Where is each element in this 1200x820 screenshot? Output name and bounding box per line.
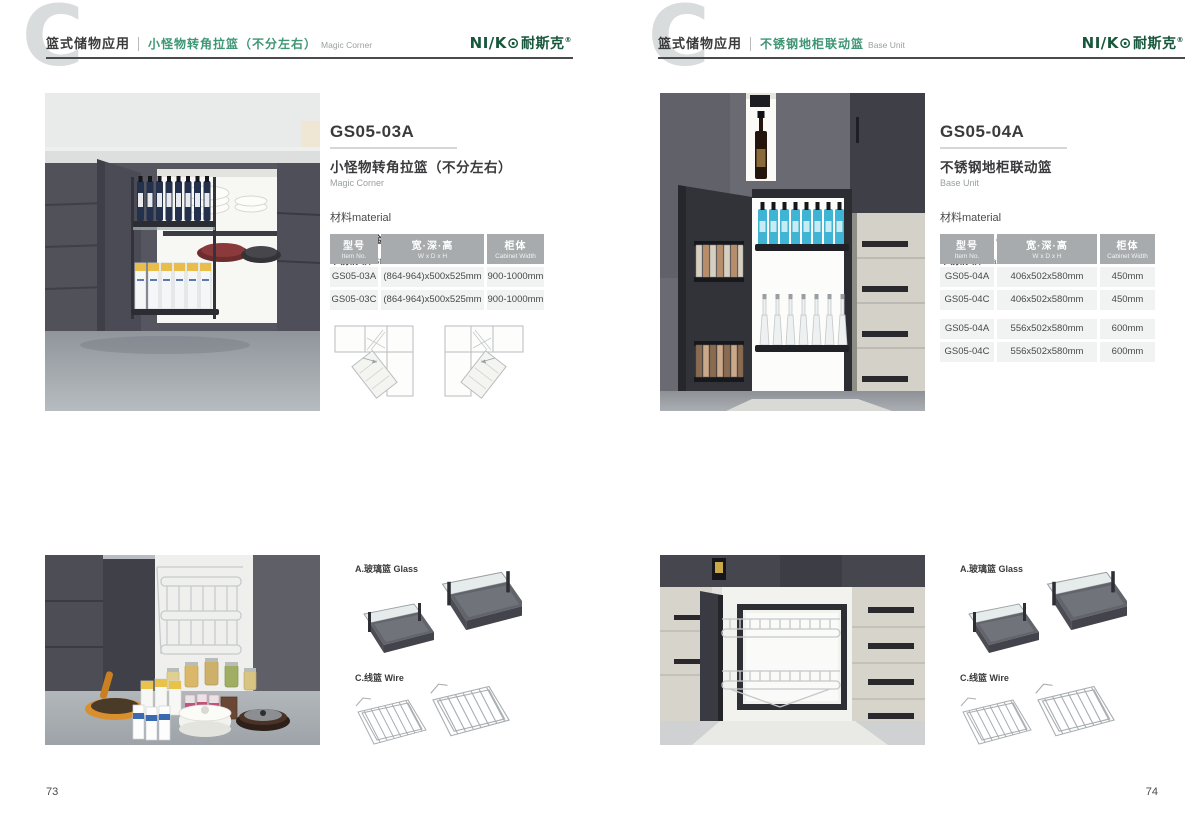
spec-cell-size: 556x502x580mm [997,342,1097,362]
catalog-page-right: C 篮式储物应用不锈钢地柜联动篮Base Unit NI/K⊙耐斯克® [600,0,1200,820]
spec-cell-model: GS05-04C [940,290,994,310]
header-category: 篮式储物应用 [658,36,742,51]
glass-basket-image [350,570,522,671]
main-product-photo [660,93,925,411]
spec-header-model: 型号Item No. [330,234,378,264]
logo-o-icon: ⊙ [1119,34,1132,52]
spec-cell-cabinet: 600mm [1100,342,1155,362]
spec-cell-cabinet: 900-1000mm [487,267,544,287]
catalog-page-left: C 篮式储物应用小怪物转角拉篮（不分左右）Magic Corner NI/K⊙耐… [0,0,600,820]
spec-cell-cabinet: 450mm [1100,267,1155,287]
spec-cell-size: (864-964)x500x525mm [381,267,484,287]
catalog-spread: C 篮式储物应用小怪物转角拉篮（不分左右）Magic Corner NI/K⊙耐… [0,0,1200,820]
spec-header-cabinet: 柜体Cabinet Width [487,234,544,264]
spec-header-size: 宽·深·高W x D x H [997,234,1097,264]
product-name-en: Base Unit [940,178,1165,188]
base-unit-cabinet-illustration [660,93,925,411]
header-title-en: Base Unit [868,40,905,50]
wire-basket-illustration [955,682,1127,748]
spec-table: 型号Item No. 宽·深·高W x D x H 柜体Cabinet Widt… [330,234,544,310]
linked-baskets-scene [660,555,925,745]
page-number: 74 [1146,786,1158,798]
product-model: GS05-03A [330,122,555,142]
spec-cell-size: 406x502x580mm [997,267,1097,287]
glass-basket-image [955,570,1127,671]
spec-cell-size: 556x502x580mm [997,319,1097,339]
main-product-photo [45,93,320,411]
spec-cell-cabinet: 600mm [1100,319,1155,339]
header-title-cn: 不锈钢地柜联动篮 [750,37,864,51]
nisko-logo: NI/K⊙耐斯克® [1082,33,1184,53]
product-model: GS05-04A [940,122,1165,142]
wire-basket-image [955,682,1127,753]
corner-diagram-right-swing [443,322,525,400]
product-name-cn: 不锈钢地柜联动篮 [940,156,1165,176]
spec-cell-cabinet: 900-1000mm [487,290,544,310]
header-title-en: Magic Corner [321,40,372,50]
page-number: 73 [46,786,58,798]
glass-basket-illustration [955,570,1127,666]
page-header: 篮式储物应用小怪物转角拉篮（不分左右）Magic Corner NI/K⊙耐斯克… [46,33,572,53]
spec-header-model: 型号Item No. [940,234,994,264]
spec-cell-model: GS05-04C [940,342,994,362]
application-photo [45,555,320,745]
wire-basket-illustration [350,682,522,748]
corner-baskets-scene [45,555,320,745]
corner-cabinet-illustration [45,93,320,411]
installation-diagrams [333,322,525,400]
product-name-en: Magic Corner [330,178,555,188]
header-title-cn: 小怪物转角拉篮（不分左右） [138,37,317,51]
spec-cell-size: (864-964)x500x525mm [381,290,484,310]
glass-basket-illustration [350,570,522,666]
spec-cell-model: GS05-03A [330,267,378,287]
corner-diagram-left-swing [333,322,415,400]
nisko-logo: NI/K⊙耐斯克® [470,33,572,53]
material-label: 材料material [330,209,555,225]
logo-o-icon: ⊙ [507,34,520,52]
model-underline [940,147,1067,149]
wire-basket-image [350,682,522,753]
header-category: 篮式储物应用 [46,36,130,51]
header-rule [658,57,1185,59]
product-name-cn: 小怪物转角拉篮（不分左右） [330,156,555,176]
header-rule [46,57,573,59]
spec-header-size: 宽·深·高W x D x H [381,234,484,264]
spec-cell-cabinet: 450mm [1100,290,1155,310]
spec-cell-model: GS05-04A [940,267,994,287]
application-photo [660,555,925,745]
spec-cell-model: GS05-03C [330,290,378,310]
spec-table: 型号Item No. 宽·深·高W x D x H 柜体Cabinet Widt… [940,234,1155,362]
spec-cell-model: GS05-04A [940,319,994,339]
material-label: 材料material [940,209,1165,225]
table-group-gap [940,313,1155,316]
page-header: 篮式储物应用不锈钢地柜联动篮Base Unit NI/K⊙耐斯克® [658,33,1184,53]
spec-header-cabinet: 柜体Cabinet Width [1100,234,1155,264]
spec-cell-size: 406x502x580mm [997,290,1097,310]
model-underline [330,147,457,149]
